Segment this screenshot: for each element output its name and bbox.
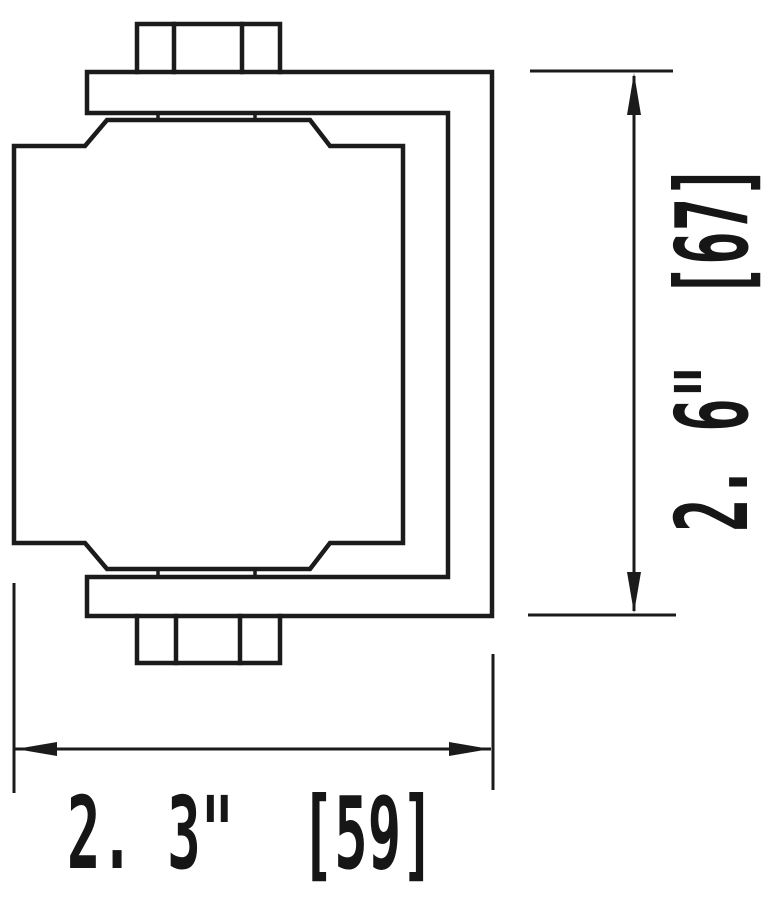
roller-body-outline [14, 120, 403, 569]
width-dimension-label: 2. 3" [59] [67, 775, 435, 892]
arrowhead-right-icon [449, 742, 490, 756]
arrowhead-left-icon [16, 742, 57, 756]
bottom-bolt-head-outline [137, 616, 280, 663]
arrowhead-up-icon [627, 73, 641, 115]
top-bolt-head-outline [137, 24, 280, 72]
bracket-outline [87, 72, 492, 616]
technical-drawing-page: 2. 3" [59] 2. 6" [67] [0, 0, 777, 897]
height-dimension-label: 2. 6" [67] [654, 164, 771, 532]
arrowhead-down-icon [627, 572, 641, 613]
